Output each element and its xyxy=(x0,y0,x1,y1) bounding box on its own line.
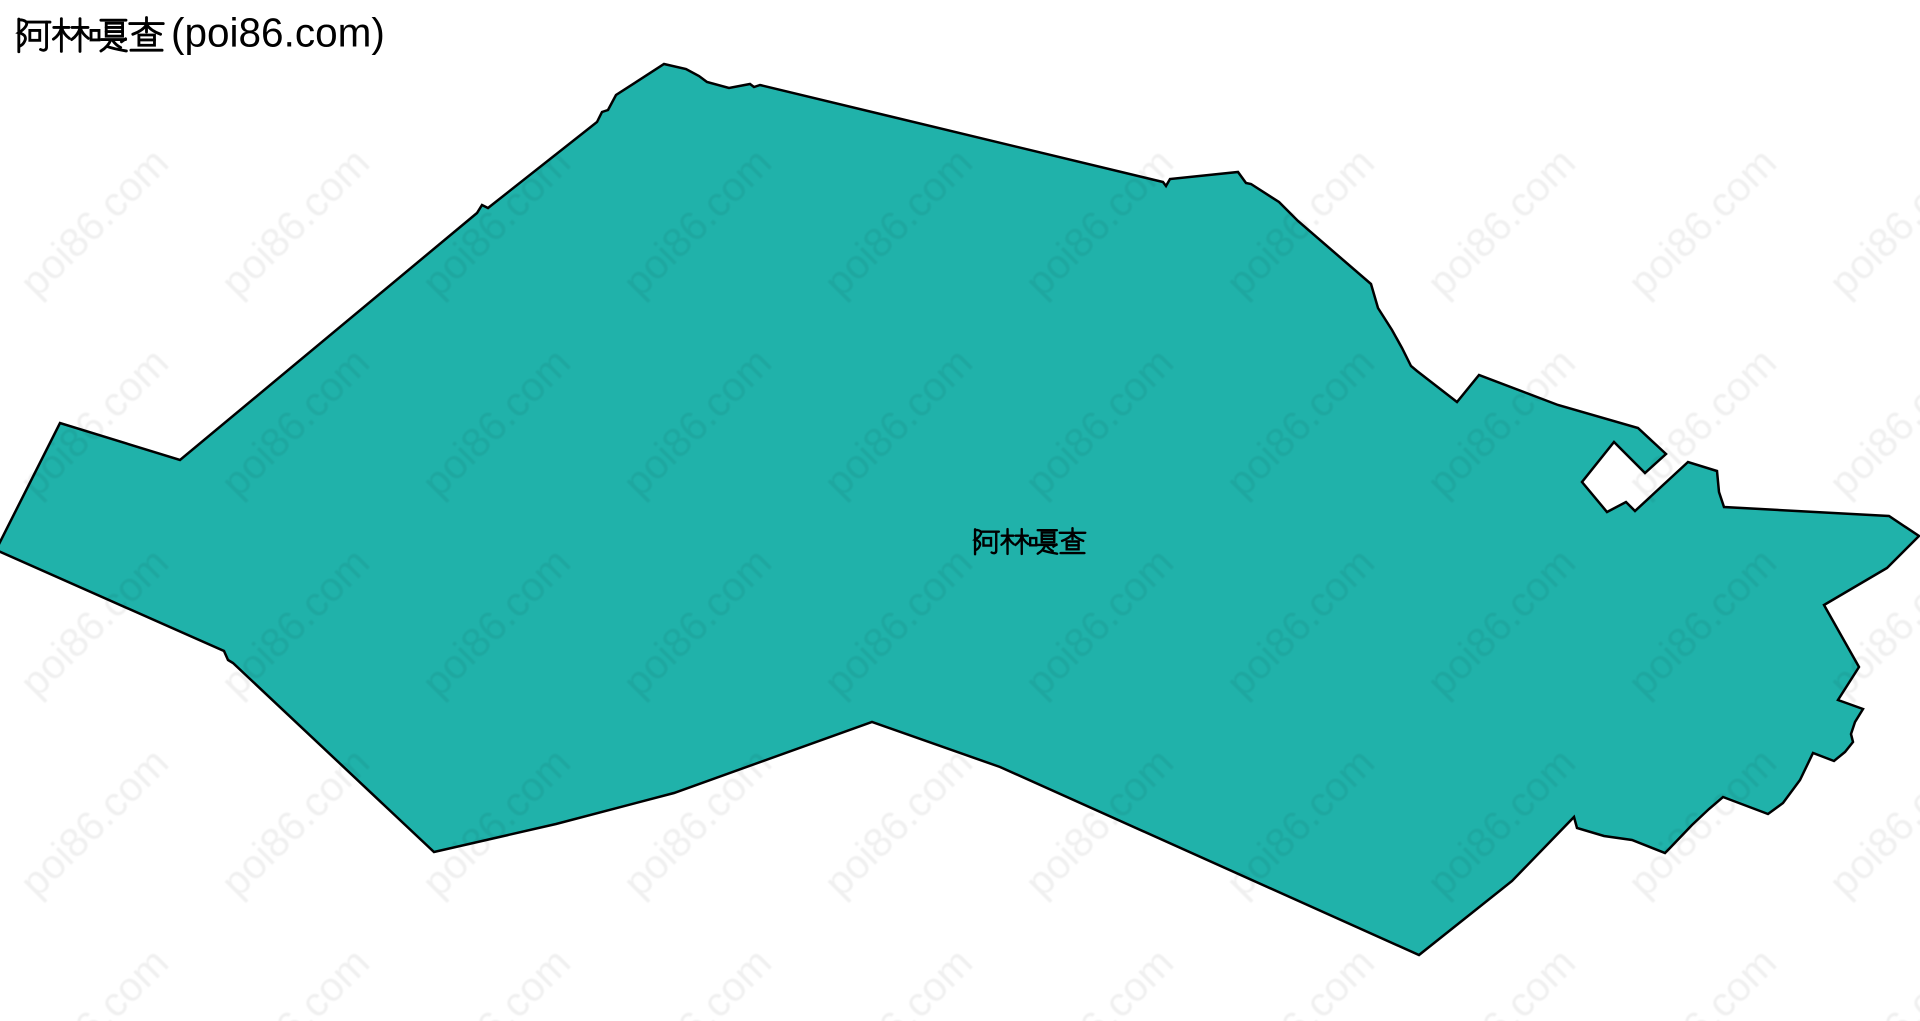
svg-text:(poi86.com): (poi86.com) xyxy=(171,9,385,55)
